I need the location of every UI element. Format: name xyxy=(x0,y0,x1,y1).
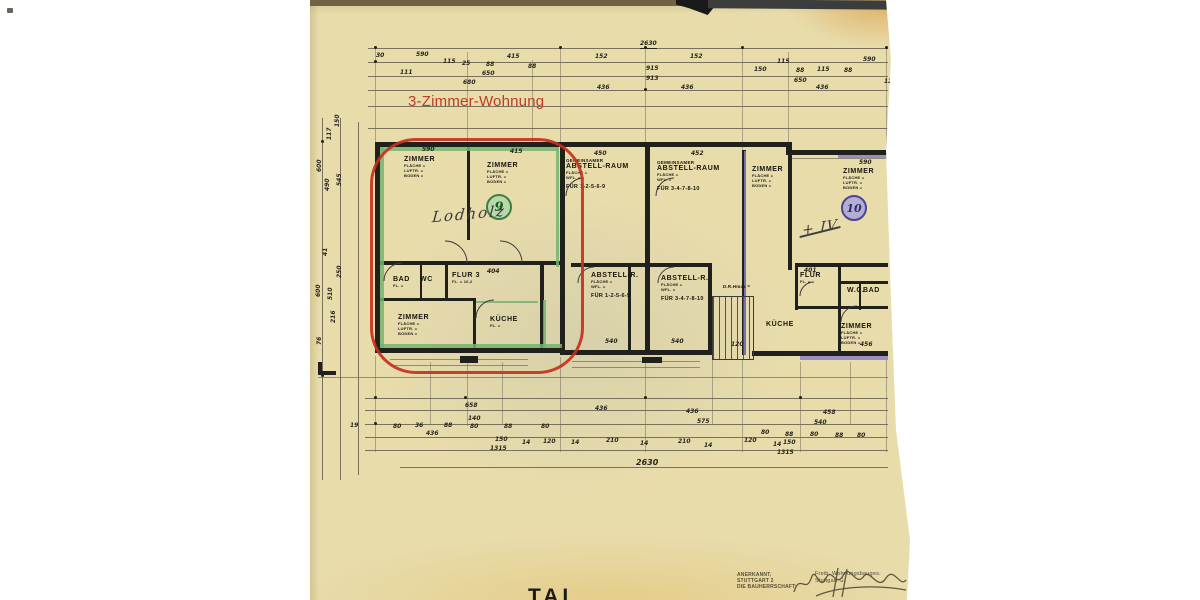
dimension-label: 210 xyxy=(606,437,619,444)
dimension-label: 111 xyxy=(400,69,413,76)
dimension-chain-line xyxy=(340,118,341,480)
dimension-label: 452 xyxy=(691,150,704,157)
dimension-label: 80 xyxy=(857,432,865,439)
chain-node xyxy=(559,46,562,49)
wall xyxy=(642,357,662,363)
chain-node xyxy=(374,422,377,425)
dimension-label: 80 xyxy=(761,429,769,436)
dimension-label: 450 xyxy=(594,150,607,157)
wall xyxy=(645,142,650,354)
wall-highlight-purple xyxy=(800,356,888,360)
dimension-label: 88 xyxy=(796,67,804,74)
wall-highlight-purple xyxy=(838,155,888,158)
extension-line xyxy=(886,359,887,452)
dimension-label: 650 xyxy=(482,70,495,77)
dimension-label: 88 xyxy=(486,61,494,68)
dimension-label: 436 xyxy=(686,408,699,415)
dimension-label: 490 xyxy=(324,178,331,191)
dimension-label: 14 xyxy=(571,439,579,446)
chain-node xyxy=(644,396,647,399)
dimension-label: 436 xyxy=(681,84,694,91)
dimension-label: 36 xyxy=(415,422,423,429)
dimension-label: 120 xyxy=(744,437,757,444)
dimension-label: 250 xyxy=(336,265,343,278)
dimension-label: 650 xyxy=(794,77,807,84)
dimension-label: 120 xyxy=(731,341,744,348)
dimension-label: 216 xyxy=(330,310,337,323)
dimension-chain-line xyxy=(365,410,888,411)
dimension-label: 913 xyxy=(646,75,659,82)
dimension-label: 80 xyxy=(541,423,549,430)
dimension-label: 115 xyxy=(817,66,830,73)
dimension-label: 150 xyxy=(495,436,508,443)
extension-line xyxy=(645,357,646,452)
chain-node xyxy=(464,396,467,399)
dimension-label: 88 xyxy=(835,432,843,439)
dimension-chain-line xyxy=(368,128,888,129)
dimension-chain-line xyxy=(368,76,888,77)
dimension-label: 14 xyxy=(773,441,781,448)
chain-node xyxy=(321,374,324,377)
thin-line xyxy=(792,158,886,159)
chain-node xyxy=(374,396,377,399)
extension-line xyxy=(788,52,789,150)
dimension-label: 152 xyxy=(690,53,703,60)
chain-node xyxy=(374,60,377,63)
dimension-label: 545 xyxy=(336,173,343,186)
dimension-label: 117 xyxy=(326,127,333,140)
thin-line xyxy=(318,377,888,378)
apartment-highlight-outline xyxy=(370,138,584,374)
chain-node xyxy=(374,46,377,49)
dimension-label: 436 xyxy=(816,84,829,91)
extension-line xyxy=(560,48,561,142)
dimension-label: 436 xyxy=(597,84,610,91)
extension-line xyxy=(742,359,743,452)
dimension-label: 140 xyxy=(468,415,481,422)
builder-stamp: Freib. Wohnungsbauges. Stuttgart G xyxy=(815,571,881,584)
dimension-label: 120 xyxy=(543,438,556,445)
dimension-label: 540 xyxy=(671,338,684,345)
dimension-label: 2630 xyxy=(640,40,657,49)
dimension-label: 600 xyxy=(316,159,323,172)
room-label-zimmer-10: ZIMMERFLÄCHE =LUFTR. =BODEN = xyxy=(843,168,874,190)
extension-line xyxy=(375,356,376,452)
scan-artifact-band xyxy=(708,0,910,10)
dimension-chain-line xyxy=(365,398,888,399)
dimension-label: 540 xyxy=(605,338,618,345)
dimension-label: 436 xyxy=(426,430,439,437)
dimension-chain-line xyxy=(368,90,888,91)
dimension-label: 30 xyxy=(376,52,384,59)
dimension-chain-line xyxy=(368,48,888,49)
room-label-abstell-raum-2: GEMEINSAMERABSTELL-RAUMFLÄCHE =WFL. =FÜR… xyxy=(657,160,720,192)
dimension-label: 14 xyxy=(704,442,712,449)
dimension-label: 19 xyxy=(350,422,358,429)
dimension-label: 575 xyxy=(697,418,710,425)
dimension-label: 41 xyxy=(322,248,329,256)
scan-artifact-speck xyxy=(7,8,13,13)
room-label-drh-note: D.R.Hmax = xyxy=(723,283,750,291)
dimension-label: 115 xyxy=(777,58,790,65)
dimension-label: 590 xyxy=(863,56,876,63)
dimension-label: 510 xyxy=(327,287,334,300)
dimension-chain-line xyxy=(322,118,323,480)
room-label-bad-10: BAD xyxy=(863,287,880,295)
extension-line xyxy=(645,48,646,142)
thin-line xyxy=(572,367,700,368)
dimension-label: 2630 xyxy=(636,458,658,467)
dimension-label: 80 xyxy=(393,423,401,430)
dimension-label: 915 xyxy=(646,65,659,72)
extension-line xyxy=(886,48,887,150)
room-label-kueche-mid: KÜCHE xyxy=(766,321,794,329)
dimension-label: 88 xyxy=(844,67,852,74)
thin-line xyxy=(572,361,700,362)
dimension-label: 152 xyxy=(595,53,608,60)
extension-line xyxy=(850,362,851,424)
extension-line xyxy=(712,360,713,424)
dimension-label: 14 xyxy=(522,439,530,446)
dimension-label: 150 xyxy=(754,66,767,73)
apartment-highlight-label: 3-Zimmer-Wohnung xyxy=(408,93,544,110)
dimension-label: 80 xyxy=(810,431,818,438)
extension-line xyxy=(560,357,561,452)
dimension-label: 600 xyxy=(315,284,322,297)
wall xyxy=(841,281,888,284)
chain-node xyxy=(885,46,888,49)
dimension-label: 115 xyxy=(443,58,456,65)
dimension-label: 88 xyxy=(444,422,452,429)
wall xyxy=(571,263,711,267)
dimension-label: 590 xyxy=(416,51,429,58)
dimension-chain-line xyxy=(400,467,888,468)
dimension-label: 415 xyxy=(507,53,520,60)
dimension-label: 1315 xyxy=(777,449,794,456)
room-label-zimmer-10-s: ZIMMERFLÄCHE =LUFTR. =BODEN = xyxy=(841,323,872,345)
partial-drawing-title: TAL xyxy=(528,585,579,600)
dimension-label: 150 xyxy=(783,439,796,446)
staircase xyxy=(712,296,754,360)
room-label-wc-10: W.C. xyxy=(847,287,865,295)
dimension-label: 25 xyxy=(462,60,470,67)
dimension-label: 658 xyxy=(465,402,478,409)
dimension-label: 88 xyxy=(504,423,512,430)
dimension-label: 12 xyxy=(884,78,892,85)
dimension-label: 1315 xyxy=(490,445,507,452)
dimension-label: 80 xyxy=(470,423,478,430)
room-label-flur-10: FLURFL. = xyxy=(800,272,821,285)
room-label-abstell-r-1: ABSTELL-R.FLÄCHE =WFL. =FÜR 1-2-5-6-9 xyxy=(591,272,639,299)
stamp-line-3: DIE BAUHERRSCHAFT: xyxy=(737,584,797,590)
extension-line xyxy=(800,362,801,452)
wall xyxy=(788,142,792,270)
dimension-label: 150 xyxy=(334,114,341,127)
chain-node xyxy=(321,140,324,143)
chain-node xyxy=(644,88,647,91)
dimension-chain-line xyxy=(365,450,888,451)
dimension-label: 88 xyxy=(528,63,536,70)
builder-stamp-line-1: Freib. Wohnungsbauges. xyxy=(815,571,881,578)
chain-node xyxy=(741,46,744,49)
dimension-label: 540 xyxy=(814,419,827,426)
builder-stamp-line-2: Stuttgart G xyxy=(815,578,881,585)
dimension-label: 210 xyxy=(678,438,691,445)
dimension-label: 680 xyxy=(463,79,476,86)
blueprint-paper: 2630305901152541588650881116801524369159… xyxy=(310,0,910,600)
paper-top-edge xyxy=(310,0,704,6)
wall xyxy=(795,306,888,309)
approval-stamp: ANERKANNT, STUTTGART 2 DIE BAUHERRSCHAFT… xyxy=(737,572,797,591)
chain-node xyxy=(799,396,802,399)
extension-line xyxy=(742,48,743,150)
dimension-label: 590 xyxy=(859,159,872,166)
dimension-label: 76 xyxy=(316,337,323,345)
room-label-zimmer-mid: ZIMMERFLÄCHE =LUFTR. =BODEN = xyxy=(752,166,783,188)
unit-10-number-badge: 10 xyxy=(841,195,867,221)
dimension-label: 88 xyxy=(785,431,793,438)
wall xyxy=(560,350,714,355)
dimension-label: 436 xyxy=(595,405,608,412)
dimension-label: 458 xyxy=(823,409,836,416)
wall xyxy=(795,263,798,310)
dimension-label: 14 xyxy=(640,440,648,447)
room-label-abstell-r-2: ABSTELL-R.FLÄCHE =WFL. =FÜR 3-4-7-8-10 xyxy=(661,275,709,302)
scanned-floor-plan-page: 2630305901152541588650881116801524369159… xyxy=(0,0,1200,600)
